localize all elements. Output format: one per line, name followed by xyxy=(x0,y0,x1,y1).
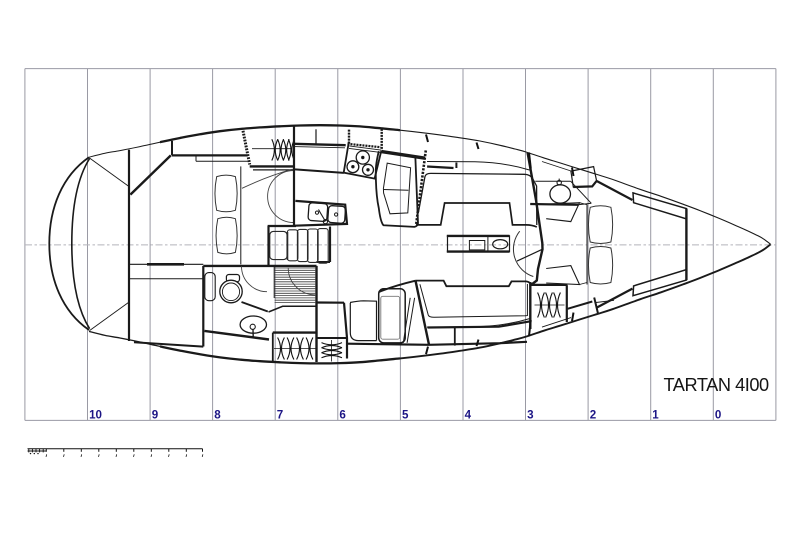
svg-text:4: 4 xyxy=(465,408,472,421)
svg-text:1: 1 xyxy=(652,408,659,421)
svg-text:2: 2 xyxy=(590,408,596,421)
svg-text:5: 5 xyxy=(402,408,409,421)
svg-text:0: 0 xyxy=(715,408,721,421)
svg-text:TARTAN 4I00: TARTAN 4I00 xyxy=(664,375,770,395)
svg-text:3: 3 xyxy=(527,408,534,421)
svg-text:7: 7 xyxy=(277,408,283,421)
svg-text:8: 8 xyxy=(214,408,221,421)
svg-text:9: 9 xyxy=(152,408,159,421)
svg-text:10: 10 xyxy=(89,408,102,421)
svg-text:6: 6 xyxy=(339,408,346,421)
